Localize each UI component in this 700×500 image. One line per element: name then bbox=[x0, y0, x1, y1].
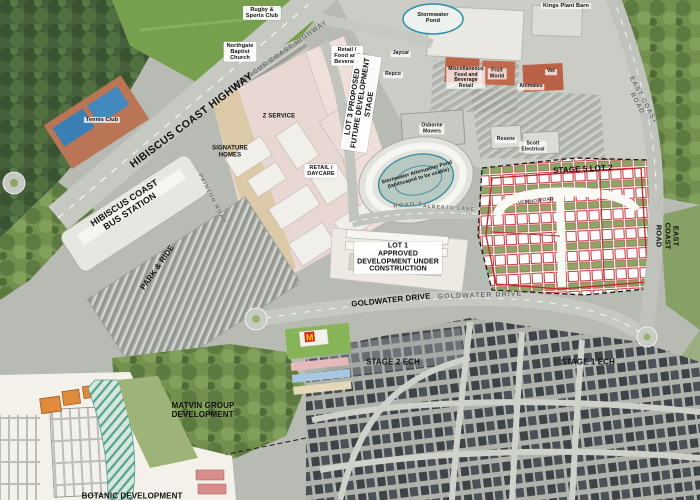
stormwater-pond-shape bbox=[403, 4, 463, 34]
site-plan-map: M Rugby & Sports Club Northgate Baptist … bbox=[0, 0, 700, 500]
aerial-basemap: M bbox=[0, 0, 700, 500]
pastel-townhouses bbox=[291, 357, 352, 395]
stage5-lot2-plan bbox=[478, 158, 656, 295]
svg-text:M: M bbox=[305, 332, 314, 343]
